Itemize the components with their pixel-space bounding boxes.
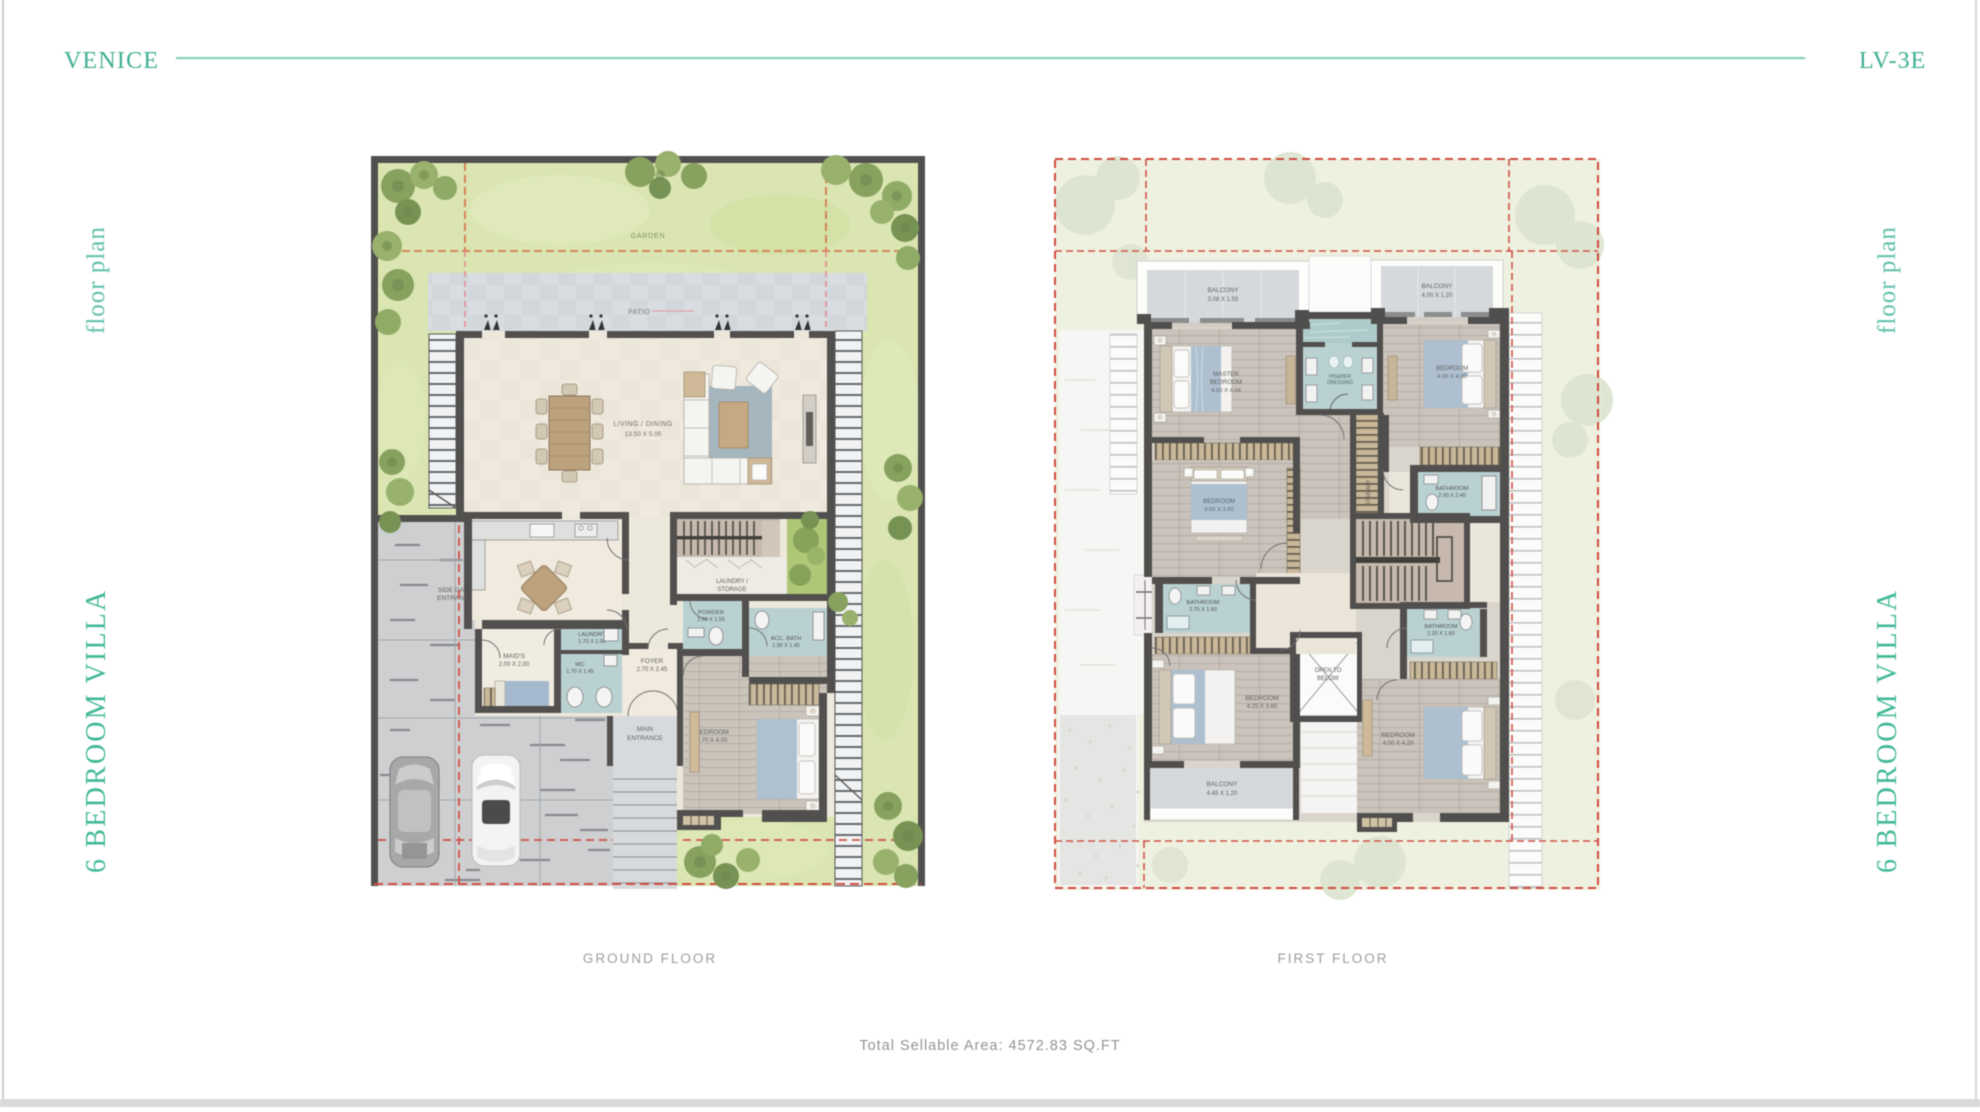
svg-text:floor plan: floor plan	[1874, 226, 1901, 334]
svg-text:floor plan: floor plan	[83, 226, 110, 334]
svg-text:LV-3E: LV-3E	[1859, 48, 1926, 74]
svg-text:6 BEDROOM VILLA: 6 BEDROOM VILLA	[81, 589, 112, 873]
svg-text:VENICE: VENICE	[64, 48, 159, 74]
svg-text:GROUND FLOOR: GROUND FLOOR	[583, 951, 717, 966]
svg-text:FIRST FLOOR: FIRST FLOOR	[1277, 951, 1388, 966]
svg-text:Total Sellable Area: 4572.83 S: Total Sellable Area: 4572.83 SQ.FT	[859, 1038, 1120, 1054]
svg-text:6 BEDROOM VILLA: 6 BEDROOM VILLA	[1872, 589, 1903, 873]
